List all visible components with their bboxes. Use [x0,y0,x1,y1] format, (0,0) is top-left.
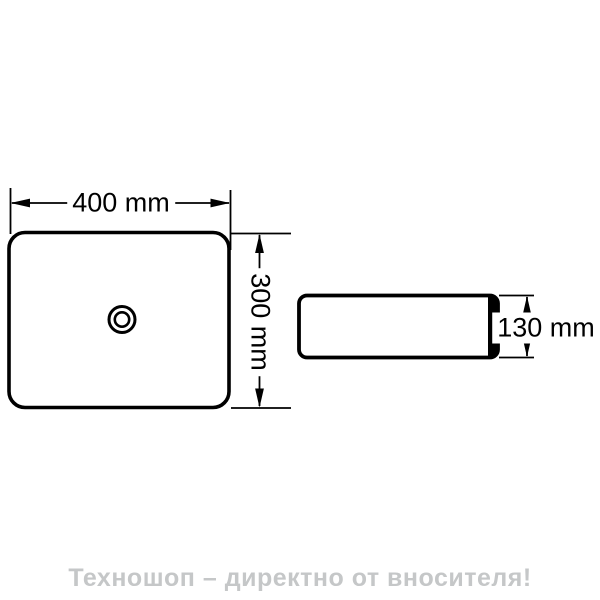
drain-icon [109,307,135,333]
arrow-right-icon [211,199,231,208]
sink-technical-drawing [0,0,600,600]
drawing-canvas: 400 mm 300 mm 130 mm Техношоп – директно… [0,0,600,600]
width-dimension-label: 400 mm [67,188,175,219]
arrow-down-icon [255,389,264,408]
arrow-up-icon [255,234,264,253]
side-view [299,294,500,359]
depth-dimension-label: 300 mm [245,268,276,376]
top-view [9,233,229,408]
basin-top-outline [9,233,229,408]
arrow-up-icon [523,296,531,313]
drain-icon-inner [115,312,129,326]
basin-side-outline [299,296,498,358]
watermark-caption: Техношоп – директно от вносителя! [0,564,600,593]
height-dimension-label: 130 mm [492,313,600,344]
arrow-left-icon [11,199,31,208]
